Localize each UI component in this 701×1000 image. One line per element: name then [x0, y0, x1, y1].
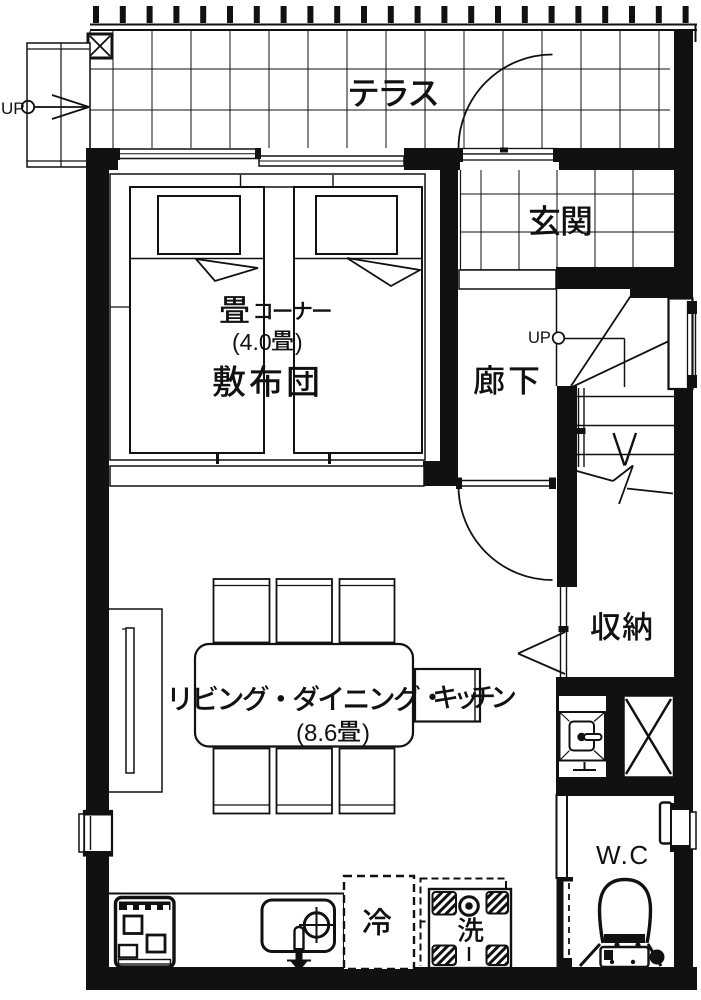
svg-text:): ) — [362, 720, 370, 747]
svg-text:(4.0: (4.0 — [232, 329, 272, 355]
svg-text:): ) — [295, 329, 303, 355]
svg-text:UP: UP — [528, 329, 551, 347]
svg-text:W.C: W.C — [596, 840, 650, 870]
svg-text:(8.6: (8.6 — [296, 720, 337, 747]
